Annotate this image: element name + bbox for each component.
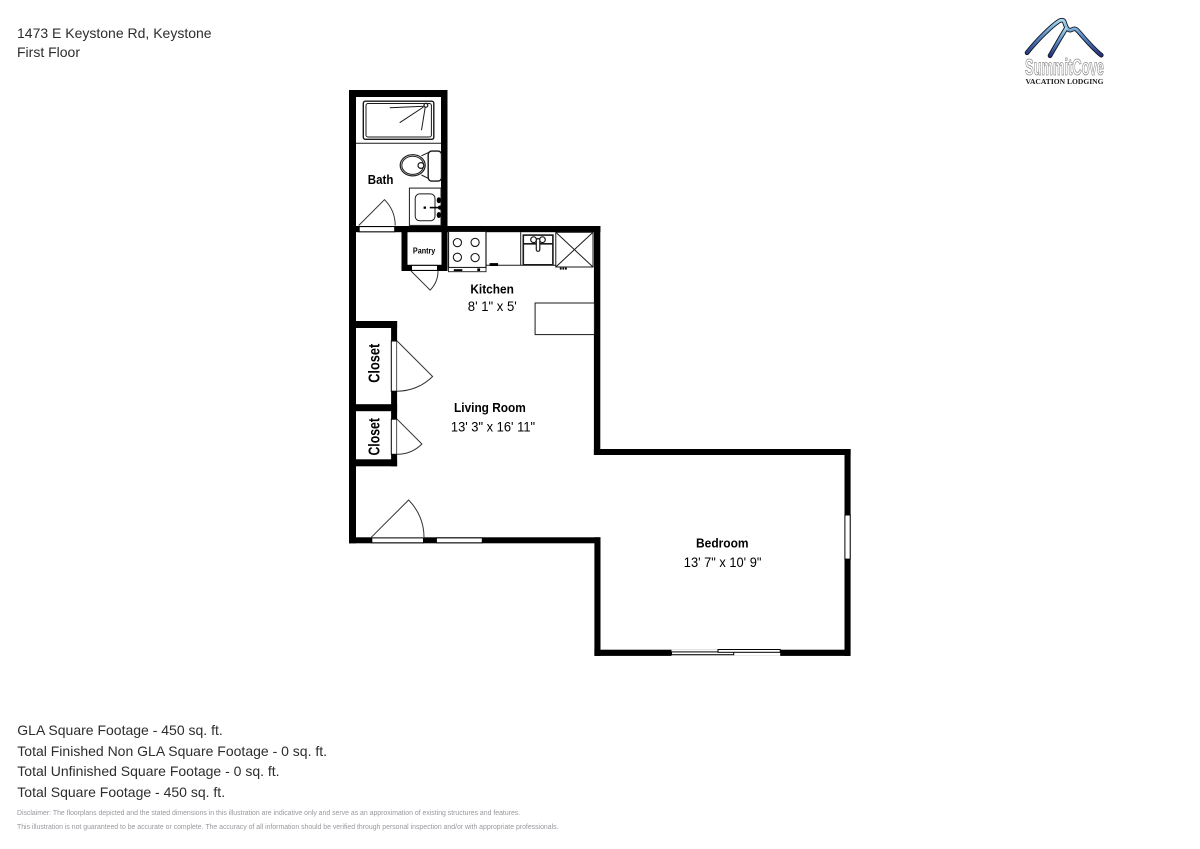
svg-text:Bedroom: Bedroom [696, 535, 749, 550]
svg-text:Closet: Closet [366, 344, 383, 383]
svg-text:8' 1" x 5': 8' 1" x 5' [468, 299, 517, 314]
svg-text:Closet: Closet [366, 418, 383, 456]
svg-text:VACATION LODGING: VACATION LODGING [1026, 77, 1104, 86]
svg-text:Living Room: Living Room [454, 400, 526, 415]
svg-text:Bath: Bath [368, 172, 394, 187]
svg-text:13' 3" x 16' 11": 13' 3" x 16' 11" [451, 419, 535, 434]
svg-text:Kitchen: Kitchen [470, 281, 514, 296]
svg-text:13' 7" x 10' 9": 13' 7" x 10' 9" [684, 555, 762, 570]
svg-text:Pantry: Pantry [413, 246, 436, 256]
